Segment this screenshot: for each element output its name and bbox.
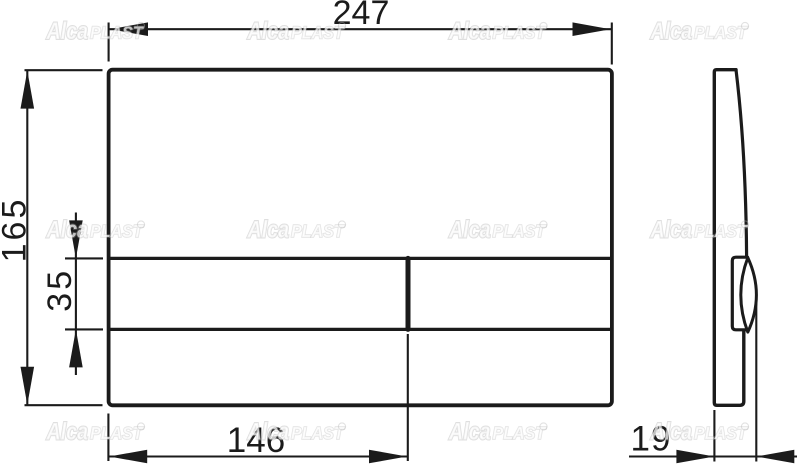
svg-text:35: 35 <box>41 268 79 312</box>
svg-text:165: 165 <box>0 197 33 263</box>
